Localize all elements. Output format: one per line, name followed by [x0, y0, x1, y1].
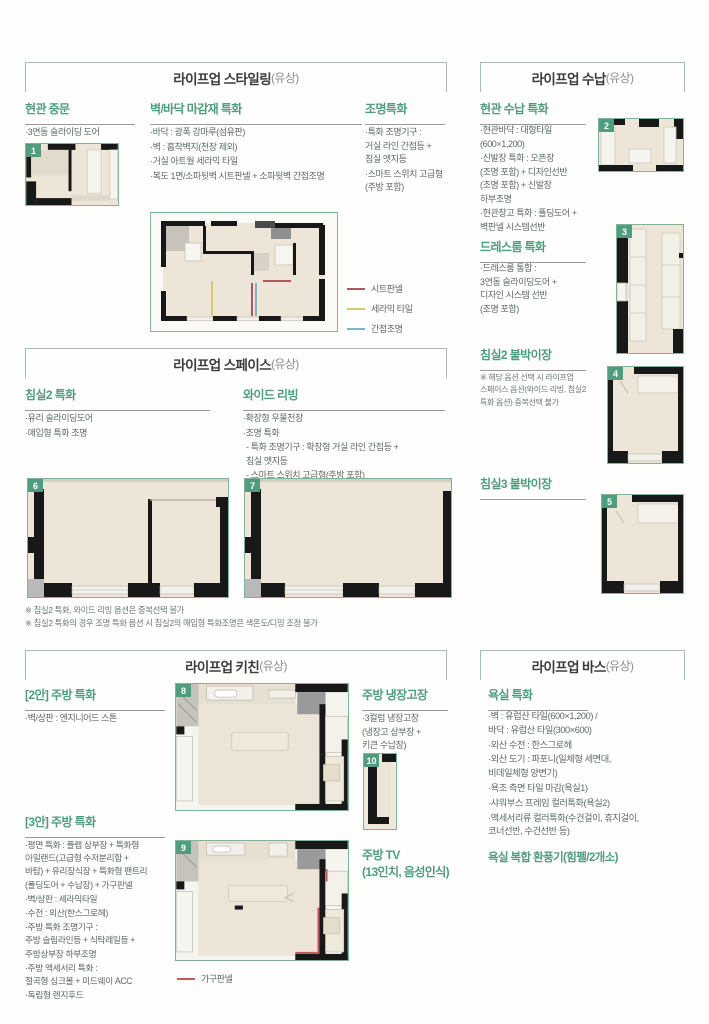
section-bath-titlebox: 라이프업 바스 (유상)	[480, 650, 685, 680]
bath-feature-item: ·욕조 측면 타일 마감(욕실1)	[488, 782, 693, 796]
heading-entry-storage: 현관 수납 특화	[480, 100, 586, 125]
floor-plan-6-drawing	[28, 479, 228, 597]
bed2-feature-item: ·매입형 특화 조명	[25, 427, 210, 441]
legend-label: 세라믹 타일	[371, 302, 413, 315]
plan-badge-6: 6	[28, 479, 43, 492]
legend-row: 간접조명	[347, 322, 413, 335]
kitchen-option2-item: ·벽/상판 : 엔지니어드 스톤	[25, 712, 170, 726]
floor-plan-7: 7	[244, 478, 452, 598]
floor-plan-3-drawing	[617, 225, 683, 353]
floor-plan-5: 5	[601, 494, 684, 594]
heading-kitchen-option3: [3안] 주방 특화	[25, 813, 165, 838]
dressroom-item: ·드레스룸 통합 : 3연동 슬라이딩도어 + 디자인 시스템 선반 (조명 포…	[480, 262, 602, 316]
legend-line-furniture-panel	[177, 978, 195, 980]
heading-wide-living: 와이드 리빙	[243, 386, 445, 411]
kitchen-option3-item: ·독립형 렌지후드	[25, 989, 175, 1002]
floor-plan-1: 1	[25, 143, 119, 206]
legend-label: 가구판넬	[201, 972, 233, 985]
plan-badge-3: 3	[617, 225, 632, 238]
legend-label: 간접조명	[371, 322, 403, 335]
wide-living-item: - 특화 조명기구 : 확장형 거실 라인 간접등 + 침실 엣지등	[243, 441, 451, 468]
kitchen-option3-item: ·수전 : 외산(한스그로헤)	[25, 907, 175, 920]
legend-line-sheet-panel	[347, 288, 365, 290]
space-footnotes: ※ 침실2 특화, 와이드 리빙 옵션은 중복선택 불가 ※ 침실2 특화의 경…	[25, 604, 451, 631]
bath-feature-item: ·액세서리류 컬러특화(수건걸이, 휴지걸이, 코너선반, 수건선반 등)	[488, 812, 693, 840]
legend-row: 세라믹 타일	[347, 302, 413, 315]
kitchen-option3-item: ·주방 액세서리 특화 : 절곡형 싱크볼 + 미드웨이 ACC	[25, 962, 175, 988]
heading-kitchen-option2: [2안] 주방 특화	[25, 686, 165, 711]
legend-line-ceramic-tile	[347, 308, 365, 310]
entry-storage-item: ·현관창고 특화 : 폴딩도어 + 벽판넬 시스템선반	[480, 207, 602, 234]
wide-living-item: ·조명 특화	[243, 427, 451, 441]
section-styling-paid-tag: (유상)	[271, 69, 299, 86]
section-space-paid-tag: (유상)	[271, 355, 299, 372]
plan-badge-7: 7	[245, 479, 260, 492]
section-space: 라이프업 스페이스 (유상) 침실2 특화 ·유리 슬라이딩도어 ·매입형 특화…	[25, 348, 451, 626]
bath-feature-item: ·외산 도기 : 파포니(일체형 세면대, 비데일체형 양변기)	[488, 753, 693, 781]
entry-storage-item: ·현관바닥 : 대형타일 (600×1,200)	[480, 124, 602, 151]
apartment-plan-drawing	[151, 213, 337, 331]
plan-badge-5: 5	[602, 495, 617, 508]
bath-feature-item: ·외산 수전 : 한스그로헤	[488, 739, 693, 753]
finish-item: ·바닥 : 광폭 강마루(섬유판)	[150, 126, 385, 140]
section-bath: 라이프업 바스 (유상) 욕실 특화 ·벽 : 유럽산 타일(600×1,200…	[480, 650, 695, 900]
space-footnote: ※ 침실2 특화, 와이드 리빙 옵션은 중복선택 불가	[25, 604, 451, 617]
brochure-page: 라이프업 스타일링 (유상) 현관 중문 ·3연동 슬라이딩 도어 1	[0, 0, 709, 1024]
heading-lighting: 조명특화	[365, 100, 445, 125]
kitchen-option3-item: ·평면 특화 : 플랩 상부장 + 특화형 아일랜드(고급형 수저분리함 + 바…	[25, 839, 175, 892]
heading-entry-door: 현관 중문	[25, 100, 135, 125]
section-kitchen-title: 라이프업 키친	[185, 656, 259, 676]
legend-line-indirect-light	[347, 328, 365, 330]
section-kitchen: 라이프업 키친 (유상) [2안] 주방 특화 ·벽/상판 : 엔지니어드 스톤…	[25, 650, 451, 1015]
heading-bed2-feature: 침실2 특화	[25, 386, 210, 411]
floor-plan-9-drawing	[176, 841, 348, 960]
heading-dressroom: 드레스룸 특화	[480, 238, 586, 263]
bath-feature-item: ·샤워부스 프레임 컬러특화(욕실2)	[488, 797, 693, 811]
legend-row: 가구판넬	[177, 972, 233, 985]
lighting-item: ·특화 조명기구 : 거실 라인 간접등 + 침실 엣지등	[365, 126, 450, 167]
entry-door-item: ·3연동 슬라이딩 도어	[25, 126, 143, 140]
kitchen-option3-item: ·벽/상판 : 세라믹타일	[25, 893, 175, 906]
section-storage-paid-tag: (유상)	[606, 69, 634, 86]
floor-plan-5-drawing	[602, 495, 683, 593]
section-storage: 라이프업 수납 (유상) 현관 수납 특화 ·현관바닥 : 대형타일 (600×…	[480, 62, 690, 637]
section-styling-titlebox: 라이프업 스타일링 (유상)	[25, 62, 447, 92]
section-bath-title: 라이프업 바스	[532, 656, 606, 676]
floor-plan-8-drawing	[176, 684, 348, 810]
floor-plan-6: 6	[27, 478, 229, 598]
section-styling-title: 라이프업 스타일링	[173, 68, 271, 88]
lighting-item: ·스마트 스위치 고급형 (주방 포함)	[365, 168, 450, 195]
heading-bed2-closet: 침실2 붙박이장	[480, 346, 586, 371]
bath-feature-item: ·벽 : 유럽산 타일(600×1,200) / 바닥 : 유럽산 타일(300…	[488, 710, 693, 738]
finish-item: ·거실 아트월 세라믹 타일	[150, 155, 385, 169]
finish-item: ·복도 1면/소파뒷벽 시트판넬 + 소파뒷벽 간접조명	[150, 170, 385, 184]
section-bath-paid-tag: (유상)	[606, 657, 634, 674]
floor-plan-10: 10	[363, 753, 397, 830]
bed2-closet-note: ※ 해당 옵션 선택 시 라이프업 스페이스 옵션(와이드 리빙, 침실2 특화…	[480, 372, 610, 409]
finish-item: ·벽 : 흡착벽지(천장 제외)	[150, 141, 385, 155]
section-styling: 라이프업 스타일링 (유상) 현관 중문 ·3연동 슬라이딩 도어 1	[25, 62, 445, 344]
bed2-feature-item: ·유리 슬라이딩도어	[25, 412, 210, 426]
heading-kitchen-tv: 주방 TV (13인치, 음성인식)	[362, 847, 457, 882]
heading-fridge-cabinet: 주방 냉장고장	[362, 686, 448, 711]
heading-bath-fan: 욕실 복합 환풍기(힘펠/2개소)	[488, 850, 698, 867]
floor-plan-8: 8	[175, 683, 349, 811]
legend-label: 시트판넬	[371, 282, 403, 295]
styling-legend: 시트판넬 세라믹 타일 간접조명	[347, 282, 413, 342]
heading-wall-floor-finish: 벽/바닥 마감재 특화	[150, 100, 362, 125]
section-storage-titlebox: 라이프업 수납 (유상)	[480, 62, 685, 92]
floor-plan-main-apartment	[150, 212, 338, 332]
plan-badge-1: 1	[26, 144, 41, 157]
section-kitchen-titlebox: 라이프업 키친 (유상)	[25, 650, 447, 680]
section-space-titlebox: 라이프업 스페이스 (유상)	[25, 348, 447, 378]
floor-plan-3: 3	[616, 224, 684, 354]
entry-storage-item: ·신발장 특화 : 오픈장 (조명 포함) + 디자인선반 (조명 포함) + …	[480, 152, 602, 206]
fridge-cabinet-item: ·3컬럼 냉장고장 (냉장고 상부장 + 키큰 수납장)	[362, 712, 452, 753]
floor-plan-9: 9	[175, 840, 349, 961]
plan-badge-4: 4	[608, 367, 623, 380]
space-footnote: ※ 침실2 특화의 경우 조명 특화 옵션 시 침실2의 매입형 특화조명은 색…	[25, 617, 451, 630]
plan-badge-10: 10	[364, 754, 379, 767]
heading-bath-feature: 욕실 특화	[488, 686, 588, 711]
floor-plan-4: 4	[607, 366, 684, 464]
legend-row: 시트판넬	[347, 282, 413, 295]
plan-badge-8: 8	[176, 684, 191, 697]
section-storage-title: 라이프업 수납	[532, 68, 606, 88]
heading-bed3-closet: 침실3 붙박이장	[480, 475, 586, 500]
floor-plan-7-drawing	[245, 479, 451, 597]
plan-badge-9: 9	[176, 841, 191, 854]
wide-living-item: ·확장형 우물천장	[243, 412, 451, 426]
section-kitchen-paid-tag: (유상)	[259, 657, 287, 674]
floor-plan-2: 2	[598, 118, 684, 172]
plan-badge-2: 2	[599, 119, 614, 132]
floor-plan-4-drawing	[608, 367, 683, 463]
section-space-title: 라이프업 스페이스	[173, 354, 271, 374]
kitchen-option3-item: ·주방 특화 조명기구 : 주방 슬림라인등 + 식탁레일등 + 주방상부장 하…	[25, 921, 175, 961]
kitchen-legend: 가구판넬	[177, 972, 233, 992]
